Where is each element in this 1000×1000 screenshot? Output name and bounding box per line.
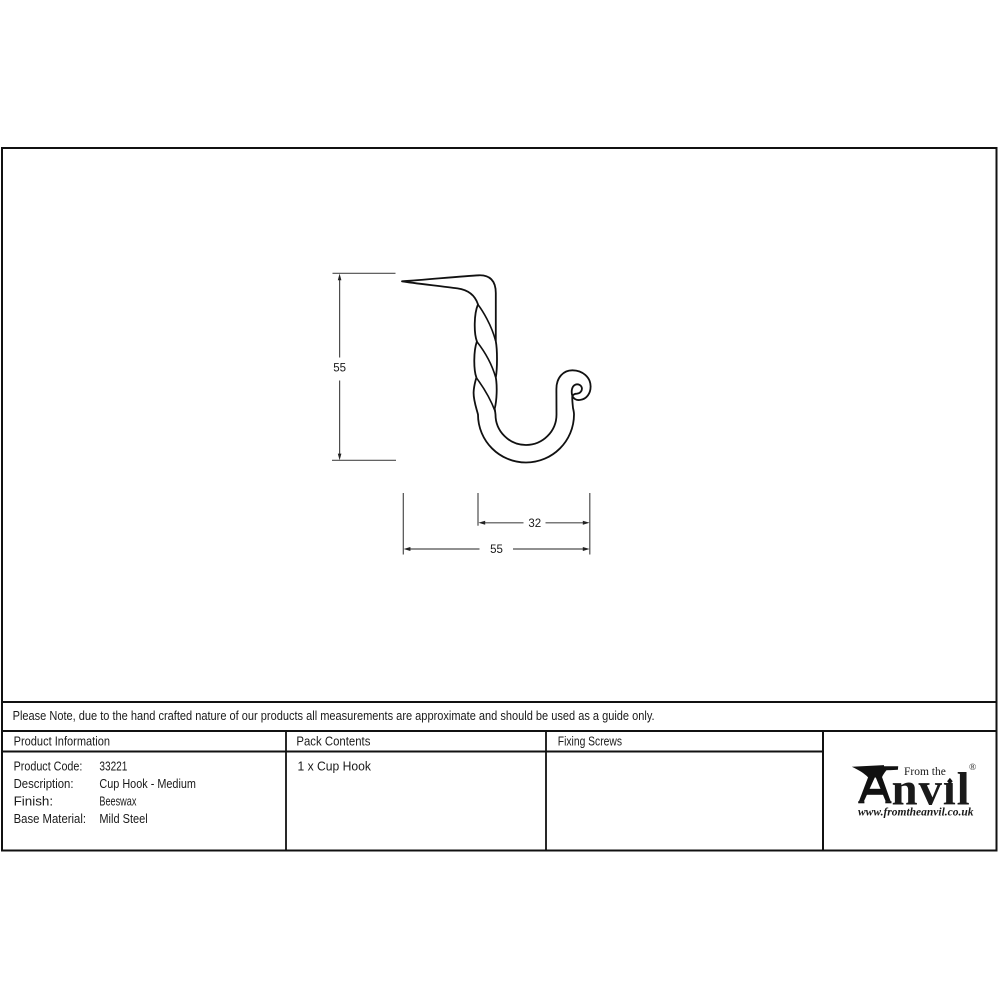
svg-text:Finish:: Finish: xyxy=(14,795,54,809)
svg-text:www.fromtheanvil.co.uk: www.fromtheanvil.co.uk xyxy=(858,807,974,819)
svg-text:Product Information: Product Information xyxy=(14,735,110,749)
svg-text:Fixing Screws: Fixing Screws xyxy=(558,735,622,749)
svg-text:55: 55 xyxy=(490,544,503,556)
svg-text:Mild Steel: Mild Steel xyxy=(99,812,147,826)
svg-text:55: 55 xyxy=(333,363,346,375)
svg-text:Please Note, due to the hand c: Please Note, due to the hand crafted nat… xyxy=(13,709,655,723)
svg-text:33221: 33221 xyxy=(99,759,127,773)
svg-text:Pack Contents: Pack Contents xyxy=(296,735,370,749)
svg-text:Description:: Description: xyxy=(14,777,74,791)
svg-text:32: 32 xyxy=(528,518,541,530)
svg-text:Cup Hook - Medium: Cup Hook - Medium xyxy=(99,777,196,791)
svg-text:From the: From the xyxy=(904,766,946,778)
svg-text:Beeswax: Beeswax xyxy=(99,795,137,809)
svg-text:Product Code:: Product Code: xyxy=(14,759,83,773)
svg-text:Base Material:: Base Material: xyxy=(14,812,86,826)
svg-text:®: ® xyxy=(969,762,976,773)
svg-text:1 x Cup Hook: 1 x Cup Hook xyxy=(298,759,372,773)
